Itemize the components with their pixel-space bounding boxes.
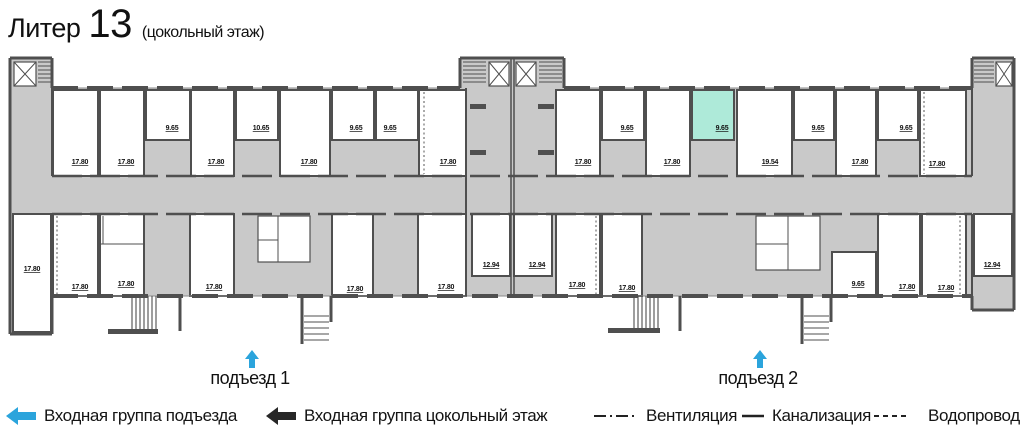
area-label-rt7: 17.80: [852, 159, 869, 166]
area-label-rt5: 19.54: [762, 159, 779, 166]
area-label-lt9: 17.80: [440, 159, 457, 166]
legend: Входная группа подъезда Входная группа ц…: [0, 400, 1024, 432]
entrance-1-label: подъезд 1: [210, 368, 290, 388]
room-lt3[interactable]: [146, 90, 190, 140]
room-lw1[interactable]: [13, 214, 51, 332]
legend-item-entrance-group: Входная группа подъезда: [6, 400, 237, 432]
area-label-rb1: 17.80: [569, 282, 586, 289]
entrance-2-label: подъезд 2: [718, 368, 798, 388]
legend-item-ventilation: Вентиляция: [594, 400, 737, 432]
area-label-lt5: 10.65: [253, 125, 270, 132]
room-rb3[interactable]: [832, 252, 876, 296]
legend-label-ventilation: Вентиляция: [646, 406, 737, 426]
area-label-rt8: 9.65: [900, 125, 913, 132]
dashed-line-icon: [874, 407, 908, 425]
area-label-rt1: 17.80: [575, 159, 592, 166]
area-label-rb0: 12.94: [529, 262, 546, 269]
room-rb5[interactable]: [922, 214, 966, 296]
floor-plan-drawing: 17.80 17.80 17.80 9.65 17.80 10.65 17.80…: [0, 0, 1024, 438]
entrance-stair-left-open: [108, 296, 180, 334]
area-label-rt3: 17.80: [664, 159, 681, 166]
floor-plan-page: Литер 13 (цокольный этаж): [0, 0, 1024, 438]
area-label-lb4: 17.80: [347, 286, 364, 293]
area-label-lt3: 9.65: [166, 125, 179, 132]
area-label-lb3: 17.80: [206, 284, 223, 291]
area-label-rt6: 9.65: [812, 125, 825, 132]
area-label-lt4: 17.80: [208, 159, 225, 166]
legend-label-water: Водопровод: [928, 406, 1020, 426]
area-label-lt8: 9.65: [384, 125, 397, 132]
area-label-lt6: 17.80: [301, 159, 318, 166]
room-lt5[interactable]: [236, 90, 278, 140]
area-label-rt2: 9.65: [621, 125, 634, 132]
room-rt2[interactable]: [602, 90, 644, 140]
blue-left-arrow-icon: [6, 407, 36, 425]
area-label-lt1: 17.80: [72, 159, 89, 166]
room-rt6[interactable]: [794, 90, 834, 140]
entrances: подъезд 1 подъезд 2: [210, 350, 798, 388]
black-left-arrow-icon: [266, 407, 296, 425]
area-label-rt9: 17.80: [929, 161, 946, 168]
area-label-lb6: 12.94: [483, 262, 500, 269]
legend-item-sewerage: Канализация: [742, 400, 871, 432]
legend-item-basement-entrance: Входная группа цокольный этаж: [266, 400, 547, 432]
room-rb2[interactable]: [602, 214, 642, 296]
room-lb4[interactable]: [332, 214, 373, 296]
area-label-rb5: 17.80: [938, 285, 955, 292]
legend-label-basement-entrance: Входная группа цокольный этаж: [304, 406, 547, 426]
area-label-rt4: 9.65: [716, 125, 729, 132]
legend-item-water: Водопровод: [874, 400, 1020, 432]
legend-label-entrance-group: Входная группа подъезда: [44, 406, 237, 426]
solid-line-icon: [742, 407, 764, 425]
entrance-1-arrow-icon: [245, 350, 259, 368]
room-lt8[interactable]: [376, 90, 418, 140]
entrance-2-arrow-icon: [753, 350, 767, 368]
room-rt4-highlighted[interactable]: [692, 90, 734, 140]
area-label-lt7: 9.65: [350, 125, 363, 132]
entrance-stair-right-open: [608, 296, 680, 333]
utility-room-left: [258, 216, 310, 262]
area-label-rb4: 17.80: [899, 284, 916, 291]
dash-dot-line-icon: [594, 407, 638, 425]
entrance-stair-left-shaft: [302, 296, 331, 344]
legend-label-sewerage: Канализация: [772, 406, 871, 426]
area-label-rb2: 17.80: [619, 285, 636, 292]
entrance-stairs: [108, 296, 831, 344]
area-label-rb6: 12.94: [984, 262, 1001, 269]
area-label-lb2: 17.80: [118, 281, 135, 288]
entrance-stair-right-shaft: [802, 296, 831, 344]
room-rt8[interactable]: [878, 90, 918, 140]
room-lt7[interactable]: [332, 90, 374, 140]
area-label-lw1: 17.80: [24, 266, 41, 273]
area-label-rb3: 9.65: [852, 281, 865, 288]
area-label-lb1: 17.80: [72, 284, 89, 291]
area-label-lt2: 17.80: [118, 159, 135, 166]
area-label-lb5: 17.80: [438, 284, 455, 291]
